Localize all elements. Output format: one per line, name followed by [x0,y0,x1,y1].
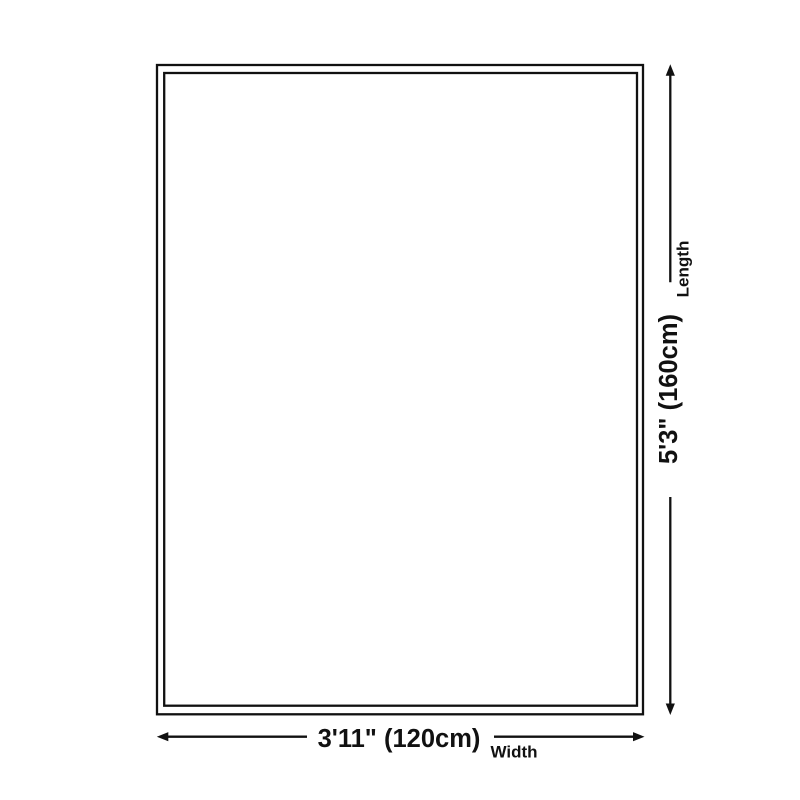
svg-text:3'11" (120cm): 3'11" (120cm) [318,725,481,753]
svg-text:5'3" (160cm): 5'3" (160cm) [655,314,683,464]
svg-text:Length: Length [674,241,693,298]
svg-text:Width: Width [491,743,538,762]
